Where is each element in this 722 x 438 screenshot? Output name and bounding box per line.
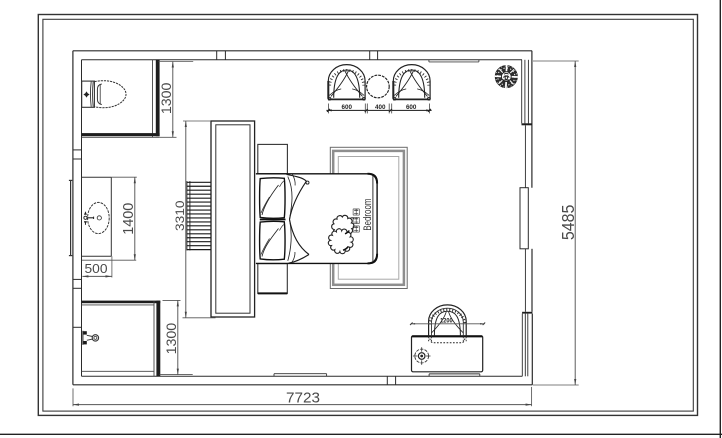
svg-text:Bedroom: Bedroom bbox=[362, 199, 374, 231]
svg-text:7723: 7723 bbox=[286, 389, 320, 406]
svg-text:1300: 1300 bbox=[159, 83, 175, 115]
svg-text:600: 600 bbox=[406, 104, 417, 111]
svg-text:400: 400 bbox=[375, 104, 386, 111]
svg-text:5485: 5485 bbox=[558, 205, 578, 241]
svg-text:1300: 1300 bbox=[164, 323, 180, 355]
svg-text:1400: 1400 bbox=[120, 203, 137, 235]
svg-text:3310: 3310 bbox=[173, 200, 187, 231]
svg-text:600: 600 bbox=[342, 104, 353, 111]
svg-text:500: 500 bbox=[85, 262, 108, 276]
svg-text:1200: 1200 bbox=[440, 317, 453, 324]
